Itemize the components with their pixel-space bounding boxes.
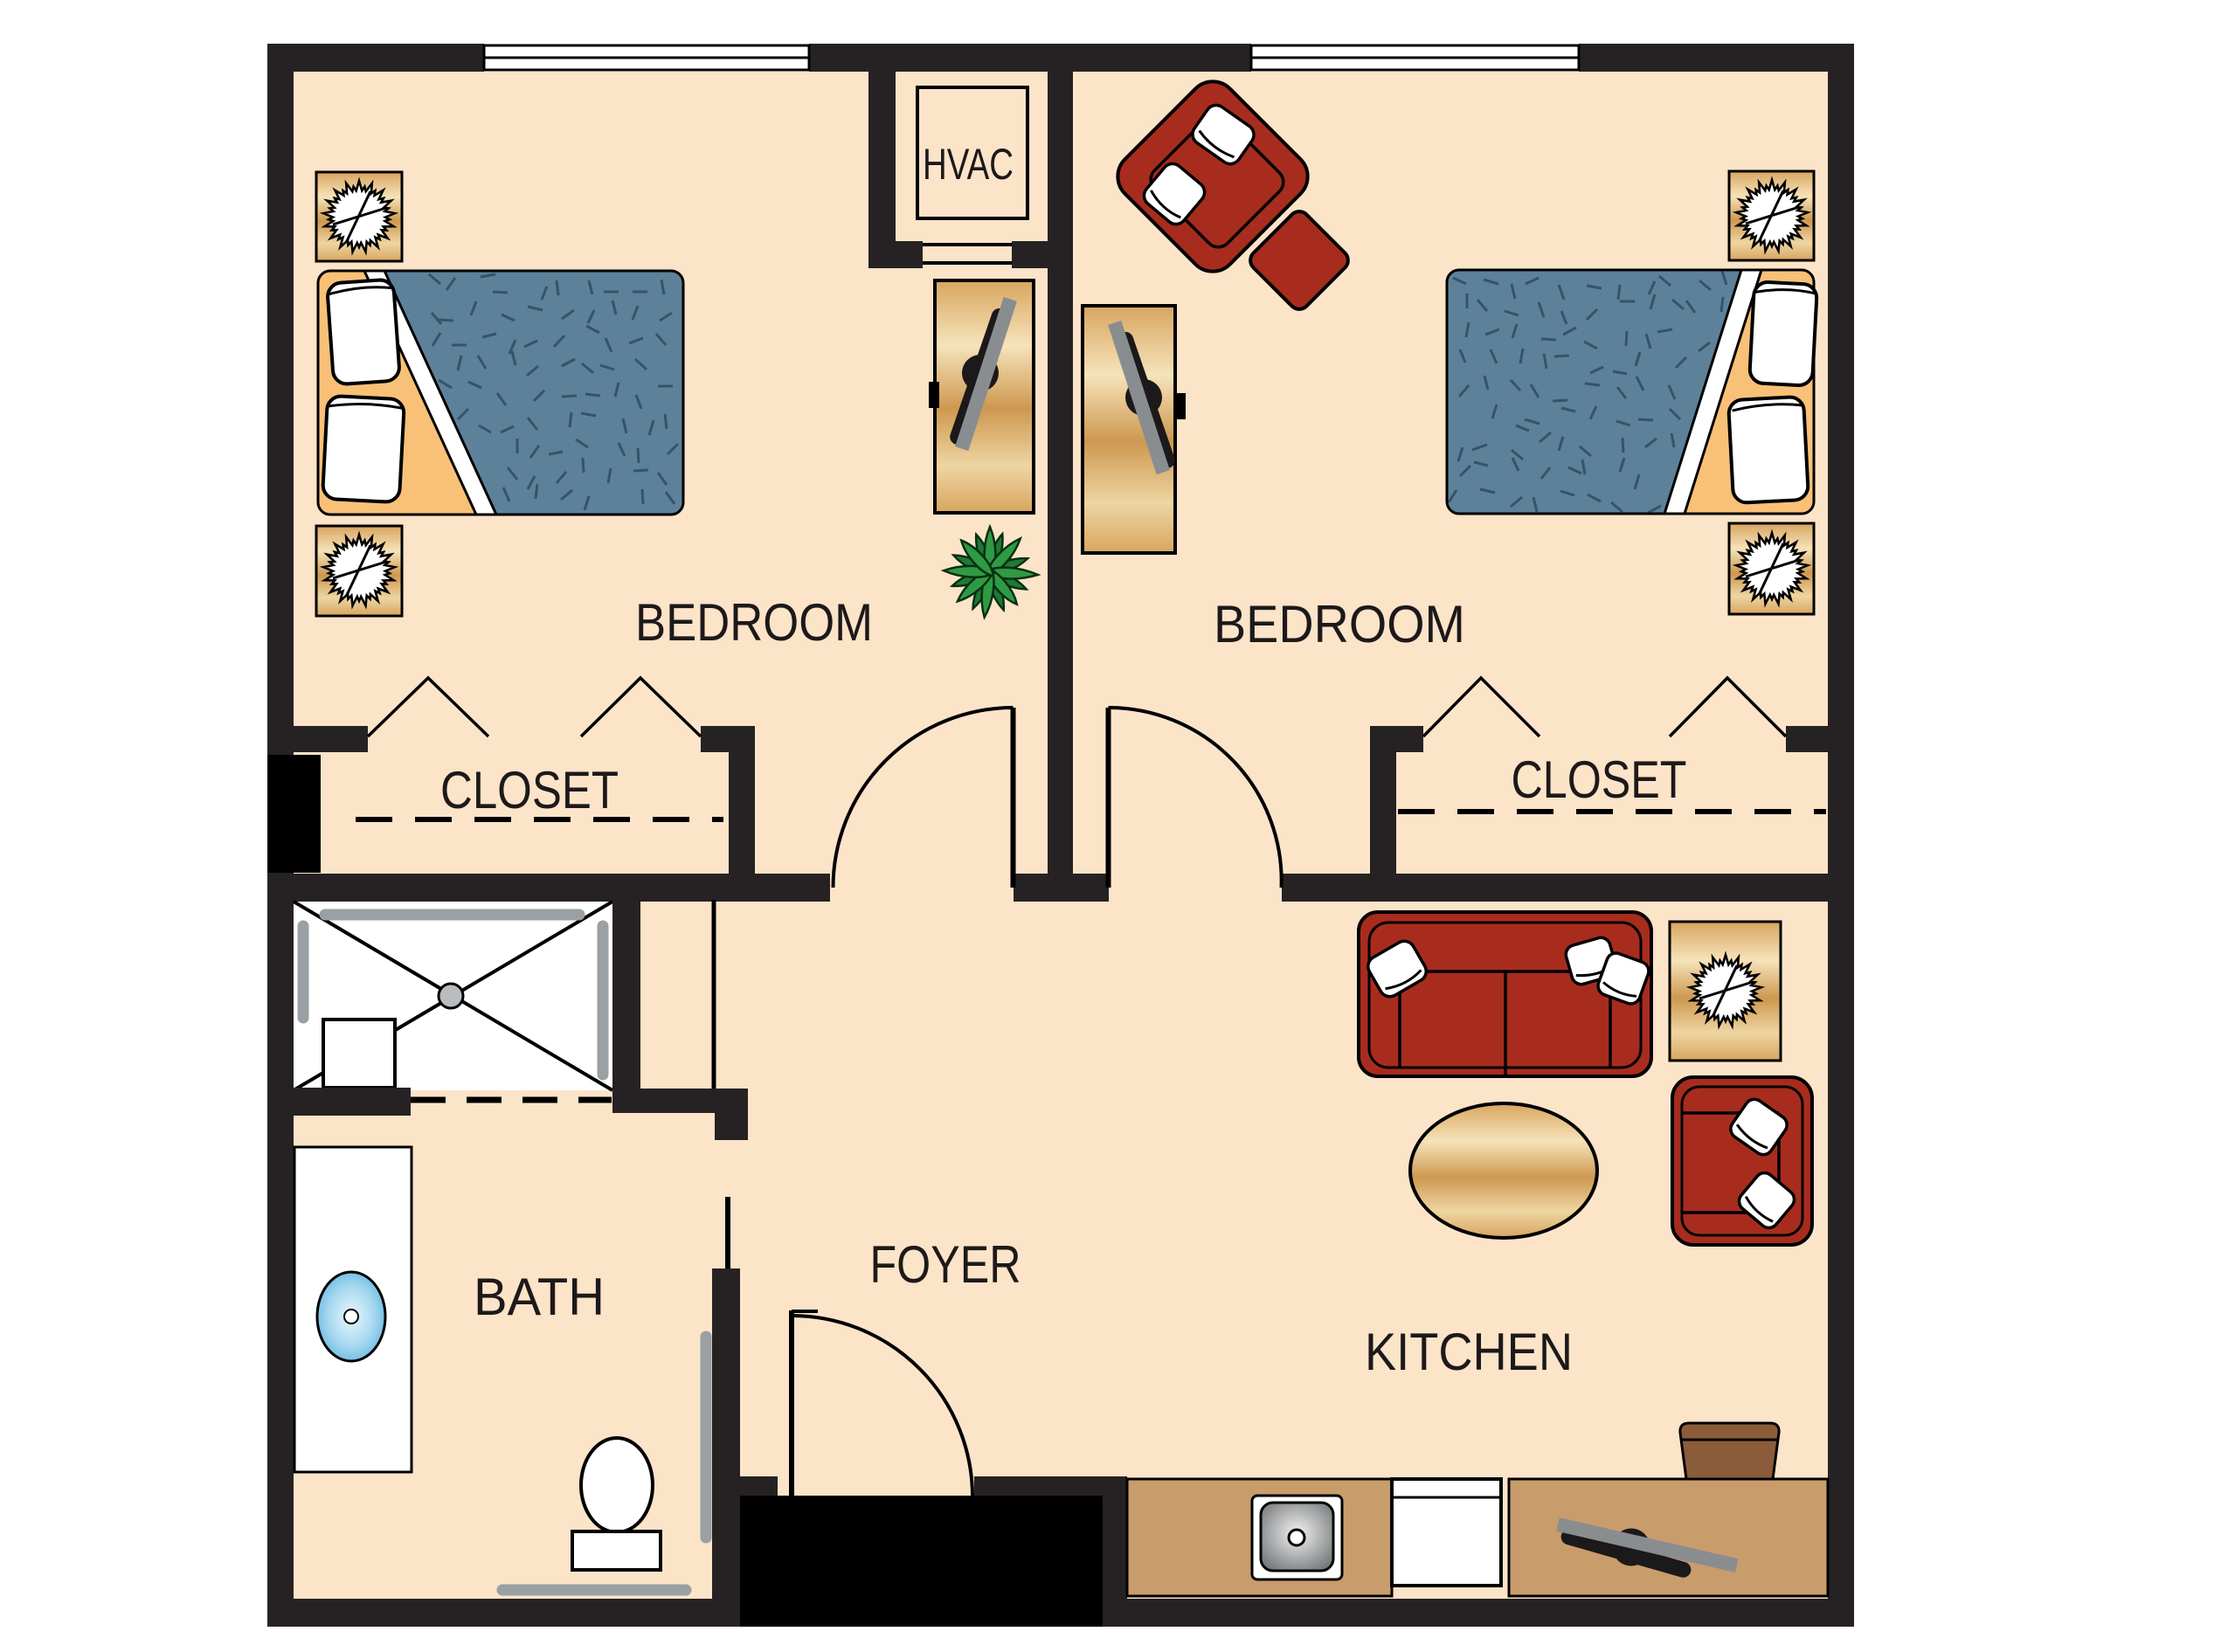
svg-text:HVAC: HVAC bbox=[923, 140, 1014, 189]
svg-text:BEDROOM: BEDROOM bbox=[1214, 595, 1465, 653]
svg-text:CLOSET: CLOSET bbox=[1512, 750, 1687, 809]
svg-text:BEDROOM: BEDROOM bbox=[635, 593, 873, 652]
svg-text:BATH: BATH bbox=[474, 1268, 605, 1326]
svg-text:KITCHEN: KITCHEN bbox=[1365, 1323, 1573, 1381]
svg-text:FOYER: FOYER bbox=[870, 1235, 1021, 1294]
svg-text:CLOSET: CLOSET bbox=[440, 761, 619, 819]
